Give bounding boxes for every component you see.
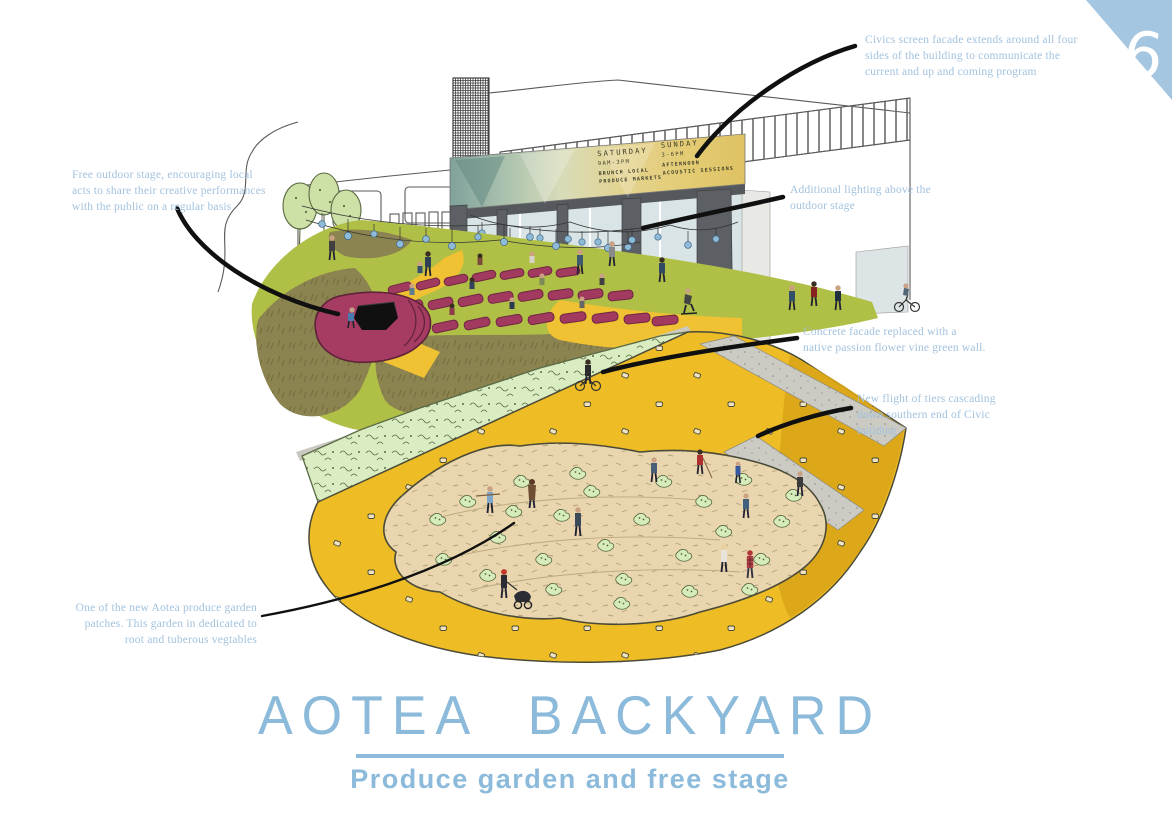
annotation-tiers: New flight of tiers cascading down south…: [857, 392, 1027, 440]
title-divider: [356, 754, 784, 758]
annotation-line: acts to share their creative performance…: [72, 184, 272, 200]
annotation-line: native passion flower vine green wall.: [803, 341, 993, 357]
annotation-lighting: Additional lighting above the outdoor st…: [790, 183, 950, 215]
page-number: 6: [1120, 17, 1167, 94]
annotation-line: with the public on a regular basis: [72, 200, 272, 216]
annotation-line: patches. This garden in dedicated to: [57, 617, 257, 633]
annotation-line: down southern end of Civic: [857, 408, 1027, 424]
annotation-line: New flight of tiers cascading: [857, 392, 1027, 408]
page-title: AOTEA BACKYARD: [0, 684, 1140, 748]
annotation-line: Civics screen facade extends around all …: [865, 33, 1080, 49]
annotation-line: Additional lighting above the: [790, 183, 950, 199]
annotation-outdoor-stage: Free outdoor stage, encouraging local ac…: [72, 168, 272, 216]
annotation-line: outdoor stage: [790, 199, 950, 215]
page-subtitle: Produce garden and free stage: [0, 764, 1140, 795]
annotation-line: sides of the building to communicate the: [865, 49, 1080, 65]
annotation-garden-patch: One of the new Aotea produce garden patc…: [57, 601, 257, 649]
annotation-line: current and up and coming program: [865, 65, 1080, 81]
annotation-line: Free outdoor stage, encouraging local: [72, 168, 272, 184]
annotation-line: Concrete facade replaced with a: [803, 325, 993, 341]
annotation-line: One of the new Aotea produce garden: [57, 601, 257, 617]
presentation-board: SATURDAY 9AM-3PM BRUNCH LOCAL PRODUCE MA…: [0, 0, 1172, 826]
annotation-green-wall: Concrete facade replaced with a native p…: [803, 325, 993, 357]
title-block: AOTEA BACKYARD Produce garden and free s…: [0, 686, 1140, 795]
annotation-line: root and tuberous vegtables: [57, 633, 257, 649]
annotation-screen-facade: Civics screen facade extends around all …: [865, 33, 1080, 81]
page-number-corner: 6: [1086, 0, 1172, 100]
annotation-line: building: [857, 424, 1027, 440]
